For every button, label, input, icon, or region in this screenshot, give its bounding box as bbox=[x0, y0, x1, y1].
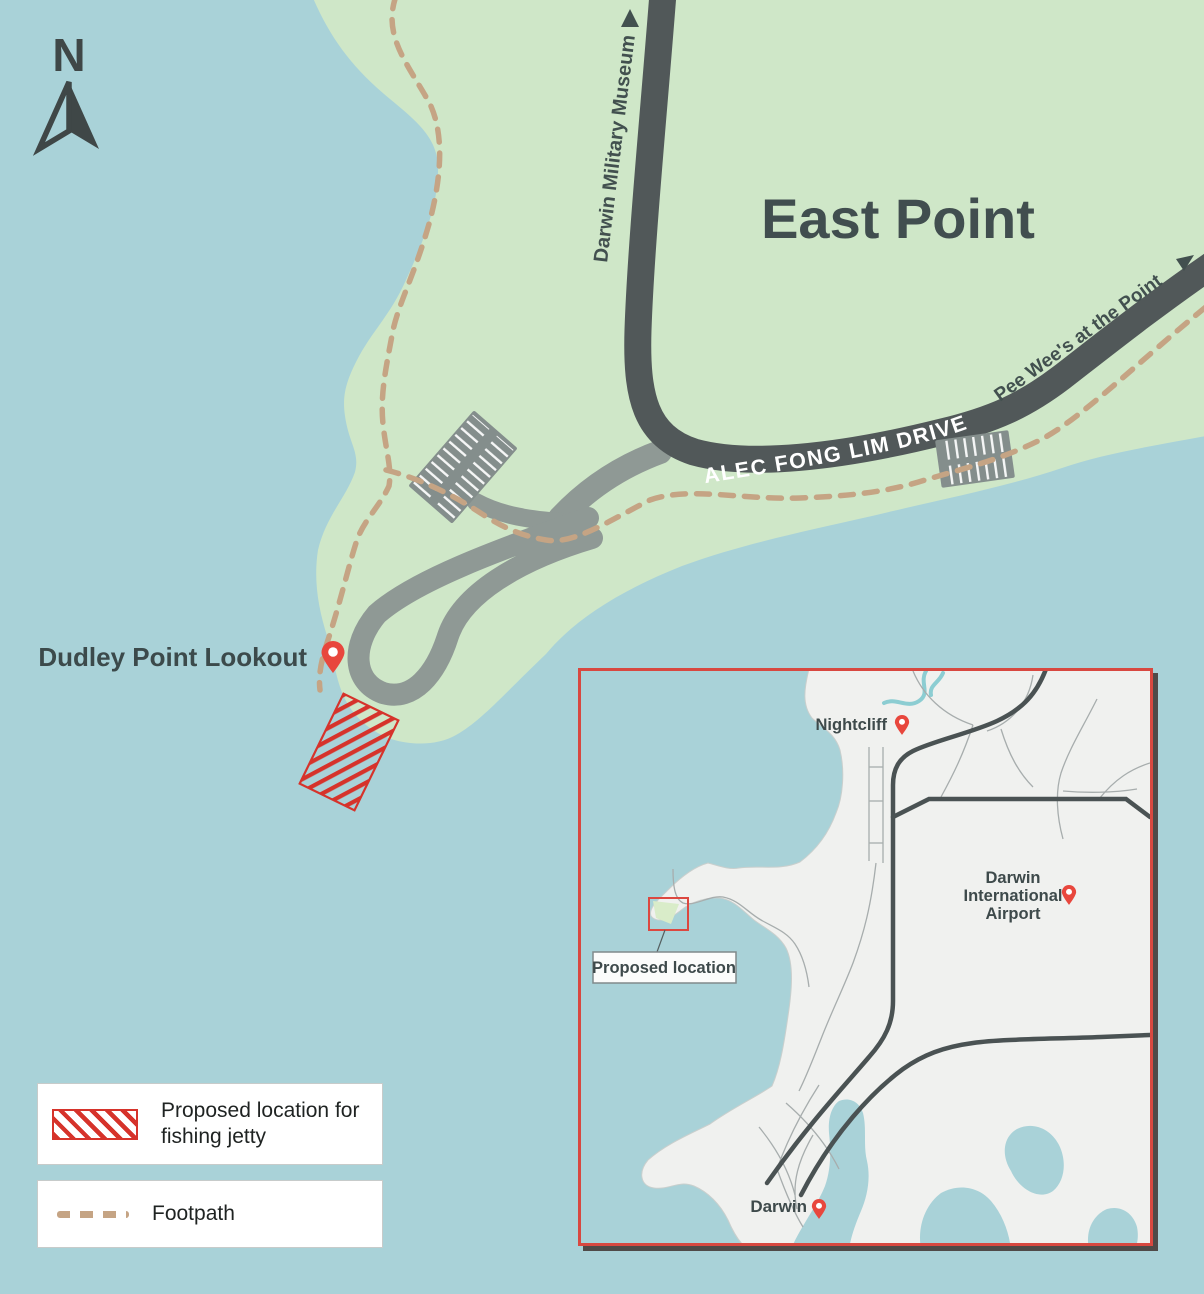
footpath-dash-swatch bbox=[57, 1211, 129, 1218]
north-label: N bbox=[52, 29, 85, 81]
legend-jetty-line1: Proposed location for bbox=[161, 1098, 359, 1124]
inset-airport-line1: Darwin bbox=[985, 869, 1040, 887]
inset-nightcliff-label: Nightcliff bbox=[816, 716, 888, 734]
jetty-hatch-swatch bbox=[52, 1109, 138, 1140]
inset-proposed-location-label: Proposed location bbox=[592, 959, 736, 977]
map-canvas: ALEC FONG LIM DRIVE Darwin Military Muse… bbox=[0, 0, 1204, 1294]
legend-jetty-label: Proposed location for fishing jetty bbox=[161, 1098, 359, 1150]
inset-darwin-label: Darwin bbox=[750, 1197, 807, 1216]
area-title: East Point bbox=[761, 187, 1035, 250]
inset-map-svg: Proposed location Nightcliff Darwin Inte… bbox=[581, 671, 1150, 1243]
inset-map: Proposed location Nightcliff Darwin Inte… bbox=[578, 668, 1153, 1246]
inset-airport-line2: International bbox=[963, 887, 1062, 905]
dudley-lookout-label: Dudley Point Lookout bbox=[38, 642, 307, 672]
legend-jetty-line2: fishing jetty bbox=[161, 1124, 359, 1150]
legend-footpath: Footpath bbox=[37, 1180, 383, 1248]
inset-airport-line3: Airport bbox=[986, 905, 1042, 923]
legend-jetty: Proposed location for fishing jetty bbox=[37, 1083, 383, 1165]
legend-footpath-label: Footpath bbox=[152, 1201, 235, 1227]
